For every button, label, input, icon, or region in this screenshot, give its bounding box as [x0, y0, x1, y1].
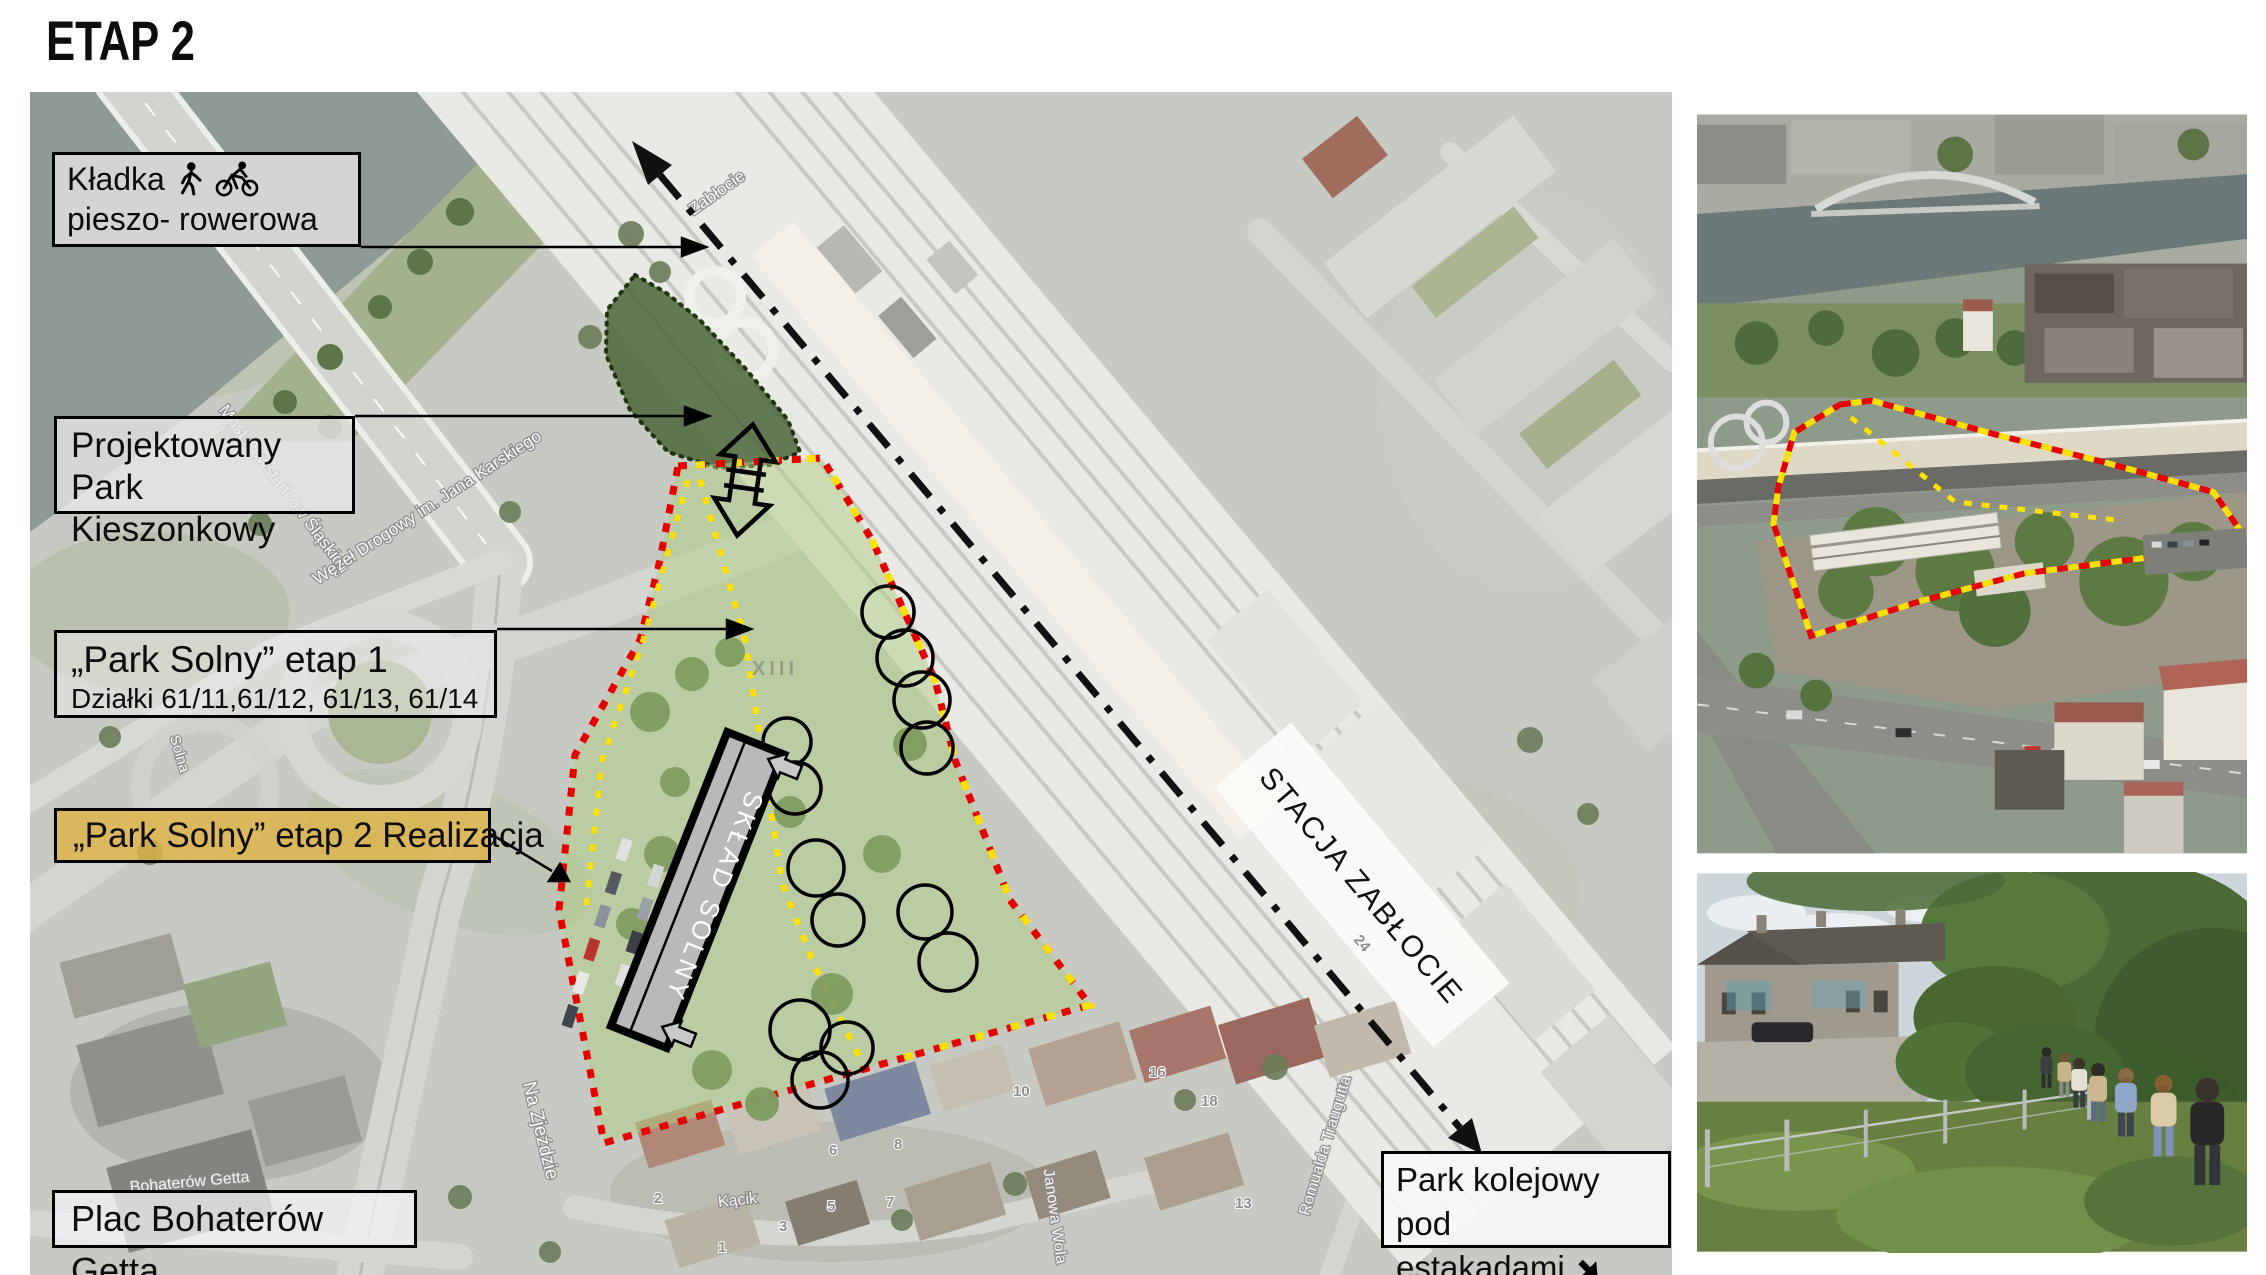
pedestrian-icon [175, 160, 205, 198]
slide: ETAP 2 [0, 0, 2266, 1275]
svg-text:10: 10 [1013, 1083, 1030, 1100]
svg-text:8: 8 [894, 1136, 902, 1153]
label-parkkol-line1: Park kolejowy pod [1396, 1158, 1656, 1246]
svg-text:13: 13 [1235, 1195, 1252, 1212]
label-etap1: „Park Solny” etap 1 Działki 61/11,61/12,… [54, 630, 497, 718]
label-pocket-line2: Park Kieszonkowy [71, 467, 338, 551]
label-plac-bohaterow-getta: Plac Bohaterów Getta [52, 1190, 417, 1248]
page-title: ETAP 2 [46, 8, 195, 73]
label-etap1-title: „Park Solny” etap 1 [71, 637, 480, 683]
aerial-oblique-photo [1697, 112, 2247, 856]
label-kladka: Kładka pieszo- rowerowa [52, 152, 361, 247]
svg-text:16: 16 [1149, 1064, 1166, 1081]
zone-label: XIII [752, 658, 798, 680]
label-kladka-line2: pieszo- rowerowa [67, 199, 346, 239]
label-parkkol-line2: estakadami [1396, 1246, 1565, 1275]
ground-photo-canvas [1697, 872, 2247, 1253]
label-kladka-line1: Kładka [67, 159, 165, 199]
svg-text:18: 18 [1201, 1093, 1218, 1110]
label-pocket-line1: Projektowany [71, 425, 338, 467]
aerial-photo-canvas [1697, 112, 2247, 856]
site-walk-photo [1697, 872, 2247, 1253]
label-park-kolejowy: Park kolejowy pod estakadami [1381, 1151, 1671, 1248]
svg-text:5: 5 [827, 1198, 835, 1215]
svg-text:3: 3 [779, 1218, 787, 1235]
site-plan-map: STACJA ZABŁOCIE [30, 92, 1672, 1275]
svg-text:6: 6 [829, 1142, 837, 1159]
cyclist-icon [215, 160, 259, 198]
svg-text:7: 7 [886, 1194, 894, 1211]
label-etap1-plots: Działki 61/11,61/12, 61/13, 61/14 [71, 683, 480, 715]
svg-text:2: 2 [654, 1190, 662, 1207]
label-etap2: „Park Solny” etap 2 Realizacja [54, 808, 491, 863]
svg-text:1: 1 [718, 1239, 726, 1256]
label-pocket-park: Projektowany Park Kieszonkowy [54, 416, 355, 514]
label-etap2-text: „Park Solny” etap 2 Realizacja [73, 816, 544, 855]
southeast-arrow-icon [1573, 1252, 1609, 1275]
